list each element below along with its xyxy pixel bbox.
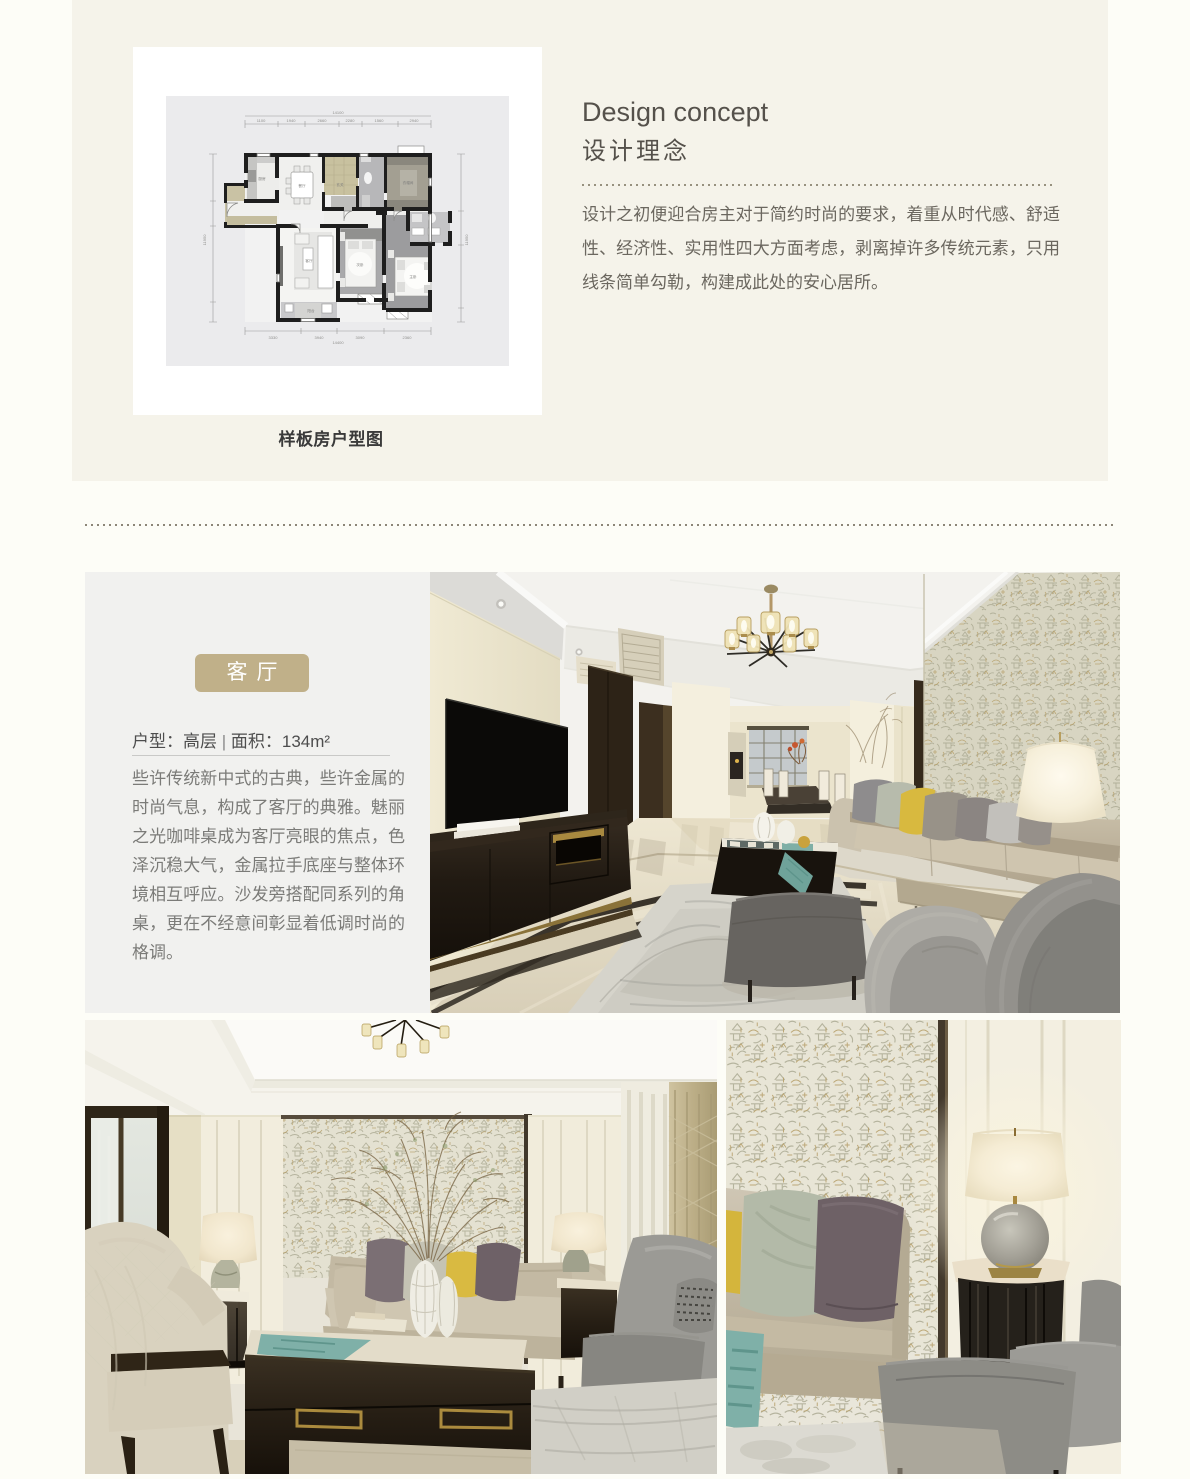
svg-text:1100: 1100: [257, 118, 266, 123]
svg-text:3330: 3330: [269, 335, 279, 340]
svg-text:2660: 2660: [318, 118, 328, 123]
svg-text:14100: 14100: [332, 110, 344, 115]
svg-text:2280: 2280: [346, 118, 356, 123]
svg-text:3940: 3940: [315, 335, 325, 340]
svg-text:衣帽间: 衣帽间: [403, 180, 414, 185]
svg-text:3090: 3090: [356, 335, 366, 340]
svg-text:主卧: 主卧: [409, 274, 417, 279]
svg-text:次卧: 次卧: [356, 262, 364, 267]
svg-text:2940: 2940: [410, 118, 420, 123]
svg-text:餐厅: 餐厅: [298, 183, 306, 188]
svg-text:11950: 11950: [464, 234, 469, 246]
svg-text:11950: 11950: [202, 234, 207, 246]
svg-text:1940: 1940: [287, 118, 297, 123]
svg-text:1560: 1560: [375, 118, 385, 123]
svg-text:阳台: 阳台: [307, 308, 315, 313]
svg-text:客厅: 客厅: [305, 258, 313, 263]
svg-text:厨房: 厨房: [258, 176, 266, 181]
svg-text:2360: 2360: [403, 335, 413, 340]
svg-text:玄关: 玄关: [336, 182, 344, 187]
svg-text:14400: 14400: [332, 340, 344, 345]
